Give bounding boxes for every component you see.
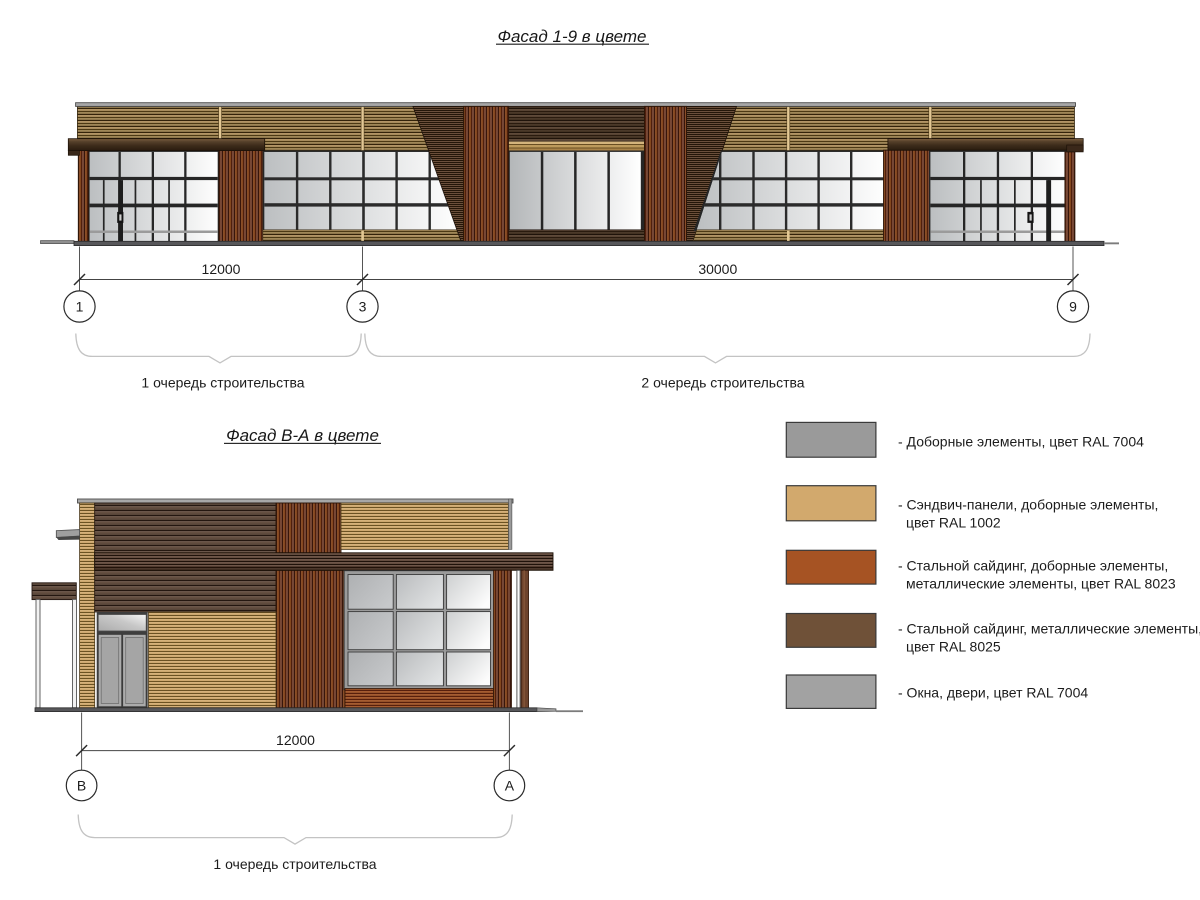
svg-text:- Сэндвич-панели, доборные эле: - Сэндвич-панели, доборные элементы,	[898, 497, 1158, 513]
svg-text:3: 3	[359, 299, 367, 315]
svg-text:1 очередь строительства: 1 очередь строительства	[213, 856, 376, 872]
svg-text:В: В	[77, 778, 86, 794]
svg-text:12000: 12000	[202, 261, 241, 277]
svg-text:Фасад В-А в цвете: Фасад В-А в цвете	[226, 426, 379, 445]
svg-text:цвет RAL 8025: цвет RAL 8025	[906, 638, 1001, 654]
svg-text:30000: 30000	[698, 261, 737, 277]
svg-text:- Доборные элементы, цвет RAL: - Доборные элементы, цвет RAL 7004	[898, 434, 1144, 450]
svg-text:9: 9	[1069, 299, 1077, 315]
svg-text:1 очередь строительства: 1 очередь строительства	[141, 375, 304, 391]
svg-text:- Стальной сайдинг, доборные э: - Стальной сайдинг, доборные элементы,	[898, 558, 1168, 574]
svg-text:- Стальной сайдинг, металличес: - Стальной сайдинг, металлические элемен…	[898, 621, 1200, 637]
svg-text:цвет RAL 1002: цвет RAL 1002	[906, 514, 1001, 530]
svg-text:А: А	[505, 778, 515, 794]
svg-text:2 очередь строительства: 2 очередь строительства	[641, 375, 804, 391]
svg-text:- Окна, двери, цвет RAL 7004: - Окна, двери, цвет RAL 7004	[898, 685, 1088, 701]
svg-text:Фасад 1-9 в цвете: Фасад 1-9 в цвете	[497, 27, 646, 46]
svg-text:металлические элементы, цвет R: металлические элементы, цвет RAL 8023	[906, 576, 1176, 592]
svg-text:1: 1	[76, 299, 84, 315]
svg-text:12000: 12000	[276, 732, 315, 748]
